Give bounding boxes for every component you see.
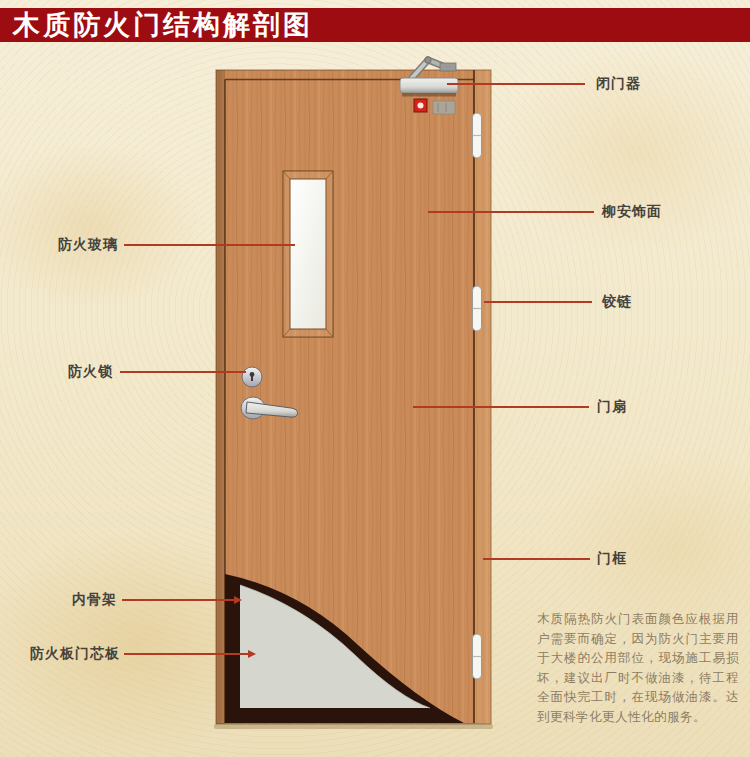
callout-fire-glass: 防火玻璃: [58, 236, 118, 254]
door-illustration: [214, 57, 493, 729]
product-description: 木质隔热防火门表面颜色应根据用户需要而确定，因为防火门主要用于大楼的公用部位，现…: [537, 610, 739, 728]
hinge-top: [473, 113, 482, 158]
door-frame-left: [216, 70, 225, 724]
callout-door-frame: 门框: [597, 550, 627, 568]
callout-lauan-veneer: 柳安饰面: [602, 203, 662, 221]
callout-door-closer: 闭门器: [596, 75, 641, 93]
page: 木质防火门结构解剖图: [0, 0, 750, 757]
callout-hinge: 铰链: [602, 293, 632, 311]
door-shadow: [214, 724, 493, 729]
strike-plate: [433, 101, 455, 114]
fire-glass-window: [283, 171, 333, 337]
callout-inner-skeleton: 内骨架: [72, 591, 117, 609]
door-frame-right: [475, 70, 491, 724]
hinge-middle: [473, 286, 482, 331]
hinge-bottom: [473, 634, 482, 679]
alarm-indicator: [414, 99, 427, 112]
callout-fire-core-board: 防火板门芯板: [30, 645, 120, 663]
callout-fire-lock: 防火锁: [68, 363, 113, 381]
callout-door-leaf: 门扇: [597, 398, 627, 416]
